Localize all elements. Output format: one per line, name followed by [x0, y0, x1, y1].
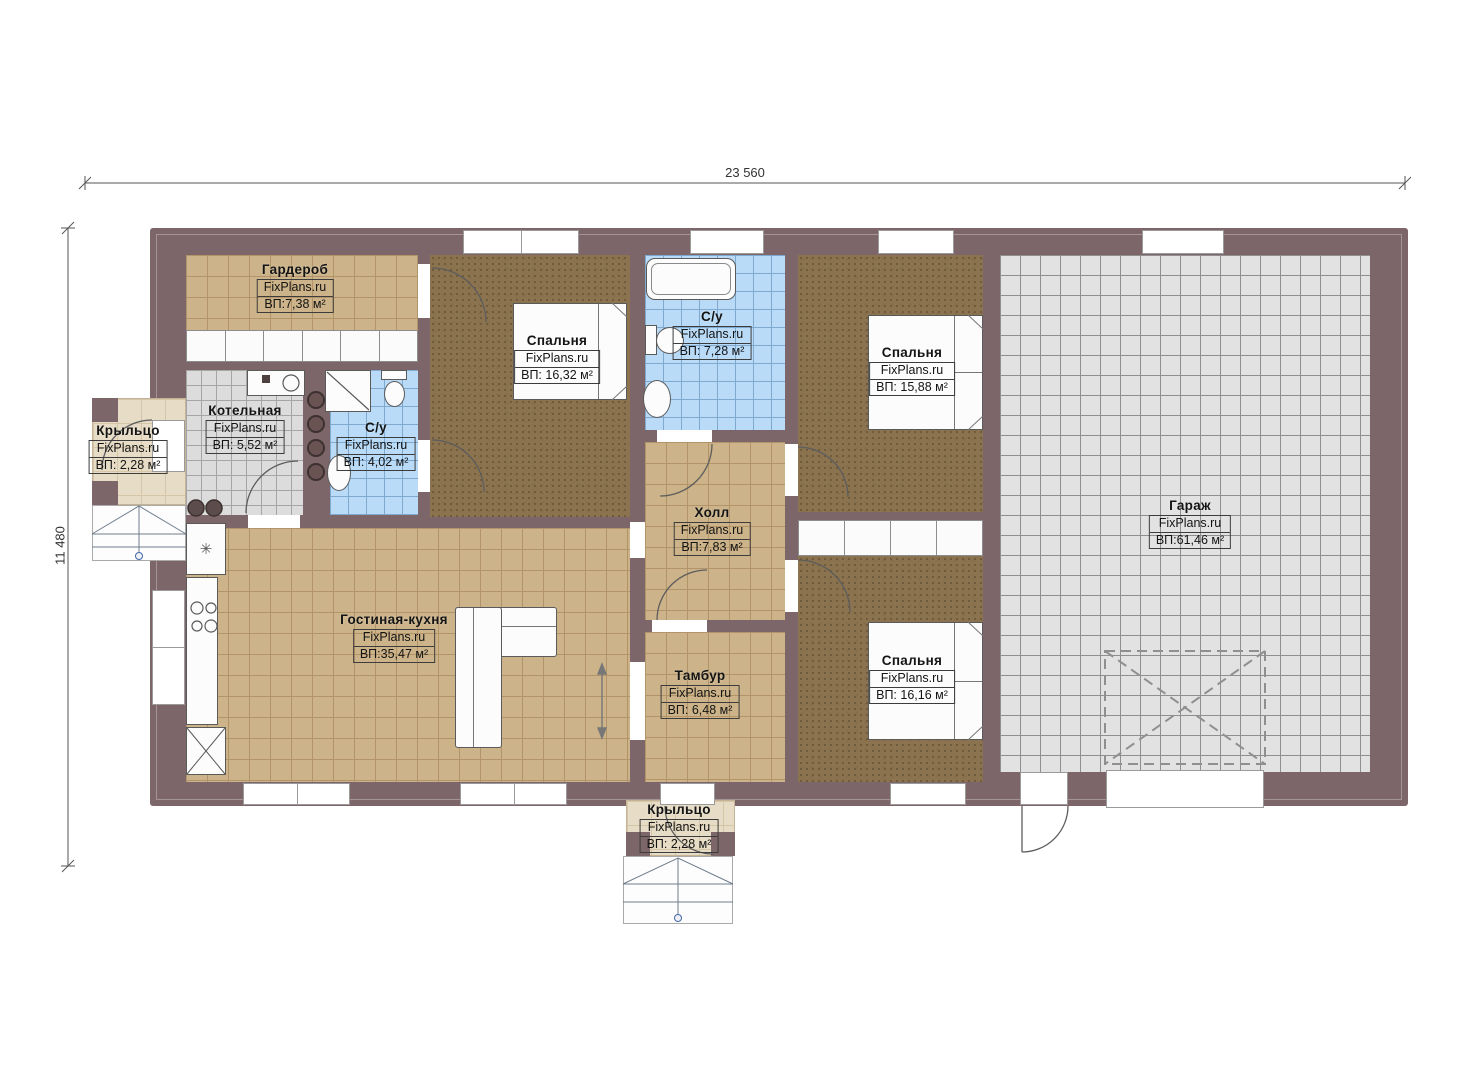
wardrobe-shelving — [186, 330, 418, 362]
room-label-vestibule: Тамбур FixPlans.ruВП: 6,48 м² — [661, 668, 740, 719]
door-opening-boiler — [248, 515, 300, 528]
window-garage-top — [1142, 230, 1224, 254]
room-label-hall: Холл FixPlans.ruВП:7,83 м² — [674, 505, 751, 556]
bathtub — [646, 258, 736, 300]
window-bedroom1-top — [463, 230, 579, 254]
porch-left-pillar-top — [92, 398, 118, 422]
room-label-wardrobe: Гардероб FixPlans.ruВП:7,38 м² — [257, 262, 334, 313]
garage-gate — [1106, 770, 1264, 808]
fridge-symbol: ✳ — [200, 540, 213, 558]
room-label-bedroom2: Спальня FixPlans.ruВП: 15,88 м² — [869, 345, 955, 396]
door-opening-hall-bedroom2 — [785, 444, 798, 496]
window-living-left — [152, 590, 185, 705]
window-bathroom1-top — [690, 230, 764, 254]
floor-plan-canvas: 23 560 11 480 — [0, 0, 1474, 1080]
door-opening-hall-bathroom1 — [657, 430, 712, 442]
room-label-living: Гостиная-кухня FixPlans.ruВП:35,47 м² — [340, 612, 448, 663]
kitchen-counter — [186, 577, 218, 725]
corridor-wardrobes — [798, 520, 983, 556]
opening-living-hall — [630, 522, 645, 558]
window-bedroom2-top — [878, 230, 954, 254]
room-label-porch-left: Крыльцо FixPlans.ruВП: 2,28 м² — [89, 423, 168, 474]
toilet2-bowl — [384, 381, 405, 407]
door-arc-garage-person — [1022, 806, 1068, 852]
garage-person-door — [1020, 772, 1068, 805]
sliding-door-living-vestibule — [630, 662, 645, 740]
fridge: ✳ — [186, 523, 226, 575]
room-label-bedroom3: Спальня FixPlans.ruВП: 16,16 м² — [869, 653, 955, 704]
toilet2-tank — [381, 370, 407, 380]
room-label-porch-bottom: Крыльцо FixPlans.ruВП: 2,28 м² — [640, 802, 719, 853]
dimension-width-label: 23 560 — [725, 165, 765, 180]
shower-cabin — [325, 370, 371, 412]
sink-bathroom1 — [643, 380, 671, 418]
dimension-height-label: 11 480 — [53, 516, 68, 576]
porch-bottom-steps — [623, 856, 733, 924]
window-bedroom3-bottom — [890, 783, 966, 805]
room-label-bathroom1: С/у FixPlans.ruВП: 7,28 м² — [673, 309, 752, 360]
door-opening-hall-vestibule — [652, 620, 707, 632]
door-opening-hall-bedroom3 — [785, 560, 798, 612]
room-label-garage: Гараж FixPlans.ruВП:61,46 м² — [1149, 498, 1231, 549]
room-label-bedroom1: Спальня FixPlans.ruВП: 16,32 м² — [514, 333, 600, 384]
window-living-bottom-2 — [460, 783, 567, 805]
porch-left-steps — [92, 505, 186, 561]
porch-left-pillar-bottom — [92, 481, 118, 505]
door-opening-bathroom2-bedroom1 — [418, 440, 430, 492]
kitchen-cabinet — [186, 727, 226, 775]
room-label-bathroom2: С/у FixPlans.ruВП: 4,02 м² — [337, 420, 416, 471]
door-opening-wardrobe-bedroom1 — [418, 264, 430, 318]
window-living-bottom-1 — [243, 783, 350, 805]
washer-counter — [247, 370, 305, 396]
room-label-boiler: Котельная FixPlans.ruВП: 5,52 м² — [206, 403, 285, 454]
sofa-vertical — [455, 607, 502, 748]
